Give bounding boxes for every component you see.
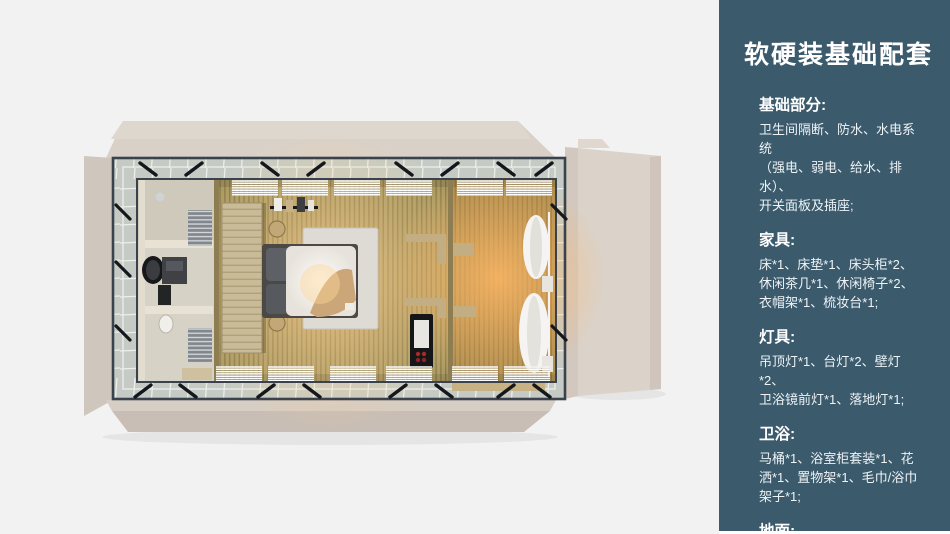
section-body: 吊顶灯*1、台灯*2、壁灯*2、 卫浴镜前灯*1、落地灯*1; <box>759 352 918 409</box>
section-body: 床*1、床垫*1、床头柜*2、 休闲茶几*1、休闲椅子*2、 衣帽架*1、梳妆台… <box>759 255 918 312</box>
headboard-wardrobe <box>222 203 266 353</box>
section-heading: 卫浴: <box>759 425 918 445</box>
section-flooring: 地面: 强化木地板、卫生间防滑防潮 石塑板; <box>759 522 918 534</box>
section-heading: 地面: <box>759 522 918 534</box>
section-heading: 灯具: <box>759 328 918 348</box>
spec-sidebar: 软硬装基础配套 基础部分: 卫生间隔断、防水、水电系统 （强电、弱电、给水、排水… <box>719 0 950 531</box>
floorplan-render <box>0 0 719 534</box>
shower-head-icon <box>156 193 165 202</box>
louver-grille <box>188 328 212 362</box>
bathroom <box>137 179 219 382</box>
nightstand-left <box>269 221 285 237</box>
bed-lamp-glow <box>300 264 340 304</box>
louver-grille <box>188 210 212 246</box>
toilet <box>159 315 173 333</box>
sidebar-title: 软硬装基础配套 <box>741 40 936 70</box>
section-lighting: 灯具: 吊顶灯*1、台灯*2、壁灯*2、 卫浴镜前灯*1、落地灯*1; <box>759 328 918 409</box>
section-heading: 家具: <box>759 231 918 251</box>
section-body: 马桶*1、浴室柜套装*1、花 洒*1、置物架*1、毛巾/浴巾 架子*1; <box>759 449 918 506</box>
divider-wall <box>448 179 453 382</box>
vanity-stool <box>158 285 171 305</box>
slide: 软硬装基础配套 基础部分: 卫生间隔断、防水、水电系统 （强电、弱电、给水、排水… <box>0 0 950 534</box>
minibar-cabinet <box>410 314 433 368</box>
section-furniture: 家具: 床*1、床垫*1、床头柜*2、 休闲茶几*1、休闲椅子*2、 衣帽架*1… <box>759 231 918 312</box>
section-basics: 基础部分: 卫生间隔断、防水、水电系统 （强电、弱电、给水、排水）、 开关面板及… <box>759 96 918 215</box>
section-heading: 基础部分: <box>759 96 918 116</box>
section-bathroom: 卫浴: 马桶*1、浴室柜套装*1、花 洒*1、置物架*1、毛巾/浴巾 架子*1; <box>759 425 918 506</box>
floorplan-render-area <box>0 0 719 534</box>
bathroom-wall <box>214 179 219 382</box>
section-body: 卫生间隔断、防水、水电系统 （强电、弱电、给水、排水）、 开关面板及插座; <box>759 120 918 215</box>
